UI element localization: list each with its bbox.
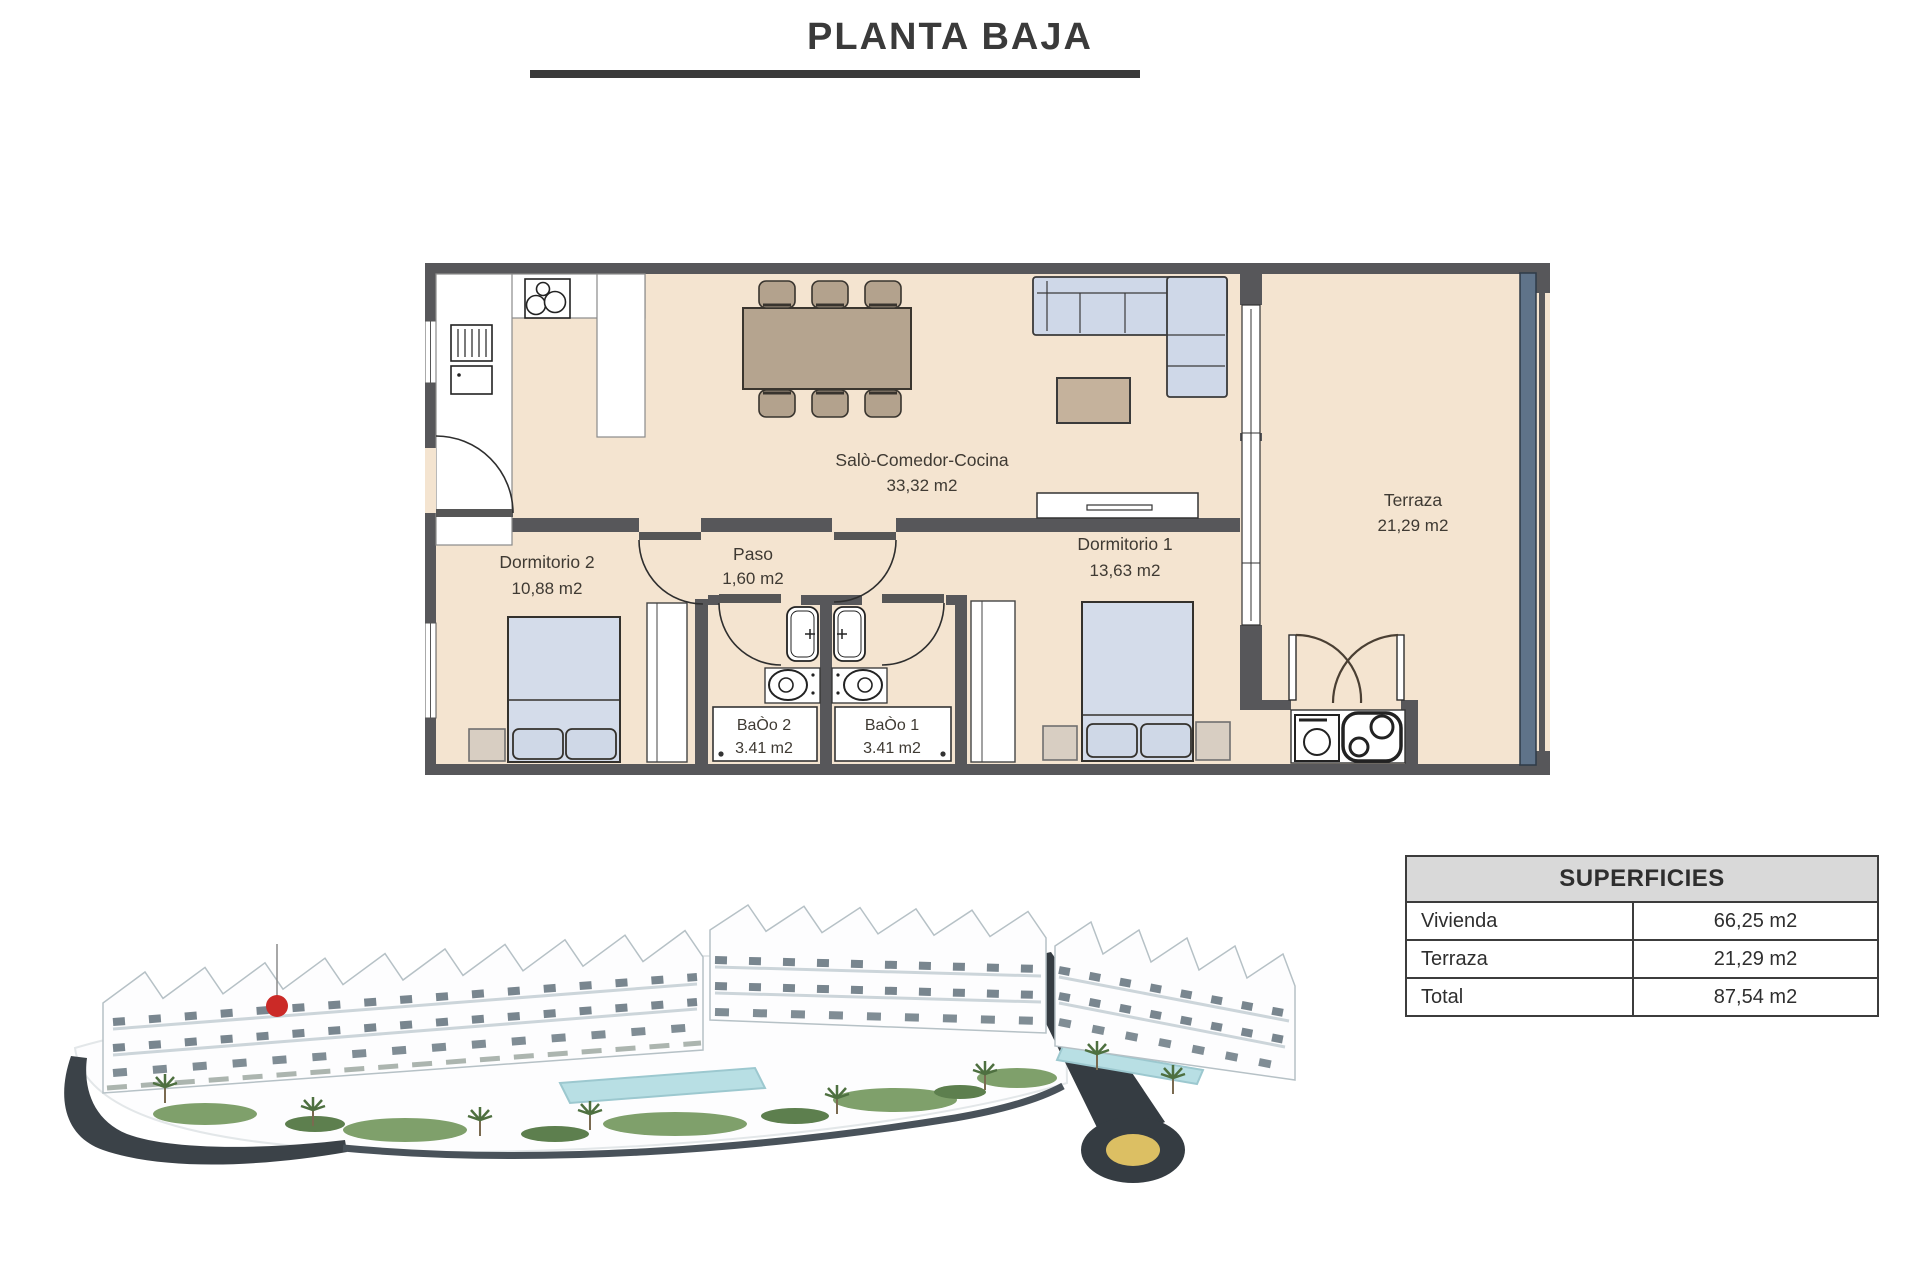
floorplan: Salò-Comedor-Cocina 33,32 m2 Terraza 21,…	[425, 263, 1550, 775]
title-underline	[530, 70, 1140, 78]
room-label-paso: Paso	[733, 544, 773, 564]
room-label-bano2: BaÒo 2	[737, 715, 791, 734]
complex-render-drawing	[55, 898, 1385, 1246]
location-marker	[266, 995, 288, 1017]
washing-machine-icon	[1295, 715, 1339, 761]
terrace-glass-railing	[1520, 273, 1536, 765]
row-value: 66,25 m2	[1634, 903, 1877, 939]
room-label-dorm1: Dormitorio 1	[1077, 534, 1172, 554]
stove-icon	[525, 279, 570, 318]
planta-baja-sheet: { "page": { "title": "PLANTA BAJA" }, "f…	[0, 0, 1920, 1280]
floorplan-drawing: Salò-Comedor-Cocina 33,32 m2 Terraza 21,…	[425, 263, 1550, 775]
dishwasher-icon	[451, 366, 492, 394]
coffee-table	[1057, 378, 1130, 423]
table-row: Terraza 21,29 m2	[1407, 941, 1877, 979]
building-middle	[710, 905, 1046, 1033]
sink-bath1	[832, 668, 887, 703]
window-left-salon	[425, 321, 436, 383]
wardrobe-dorm2	[647, 603, 687, 762]
room-area-bano2: 3.41 m2	[735, 740, 793, 757]
room-label-dorm2: Dormitorio 2	[499, 552, 594, 572]
door-stop-bath1	[940, 751, 945, 756]
nightstand-dorm2	[469, 729, 505, 761]
window-left-dorm2	[425, 623, 436, 718]
row-label: Terraza	[1407, 941, 1634, 977]
room-label-bano1: BaÒo 1	[865, 715, 919, 734]
room-area-dorm1: 13,63 m2	[1090, 561, 1161, 580]
door-stop-bath2	[718, 751, 723, 756]
wardrobe-dorm1	[971, 601, 1015, 762]
room-area-salon: 33,32 m2	[887, 476, 958, 495]
sink-bath2	[765, 668, 820, 703]
dining-table	[743, 308, 911, 389]
superficies-table: SUPERFICIES Vivienda 66,25 m2 Terraza 21…	[1405, 855, 1879, 1017]
laundry-basin-icon	[1343, 713, 1401, 761]
table-row: Total 87,54 m2	[1407, 979, 1877, 1015]
row-label: Total	[1407, 979, 1634, 1015]
row-label: Vivienda	[1407, 903, 1634, 939]
dorm1-furniture	[971, 601, 1230, 762]
superficies-header: SUPERFICIES	[1407, 857, 1877, 903]
complex-render	[55, 898, 1385, 1246]
page-title: PLANTA BAJA	[530, 16, 1370, 59]
room-label-salon: Salò-Comedor-Cocina	[835, 450, 1008, 470]
room-area-bano1: 3.41 m2	[863, 740, 921, 757]
tv-cabinet	[1037, 493, 1198, 518]
table-row: Vivienda 66,25 m2	[1407, 903, 1877, 941]
room-area-paso: 1,60 m2	[722, 569, 783, 588]
terrace-slider-door	[1242, 305, 1260, 625]
row-value: 87,54 m2	[1634, 979, 1877, 1015]
nightstand-dorm1-right	[1196, 722, 1230, 760]
room-label-terraza: Terraza	[1384, 490, 1443, 510]
shower-bath2	[787, 607, 818, 661]
roundabout-center	[1106, 1134, 1160, 1166]
nightstand-dorm1-left	[1043, 726, 1077, 760]
room-area-terraza: 21,29 m2	[1378, 516, 1449, 535]
row-value: 21,29 m2	[1634, 941, 1877, 977]
room-area-dorm2: 10,88 m2	[512, 579, 583, 598]
shower-bath1	[834, 607, 865, 661]
vent-icon	[451, 325, 492, 361]
